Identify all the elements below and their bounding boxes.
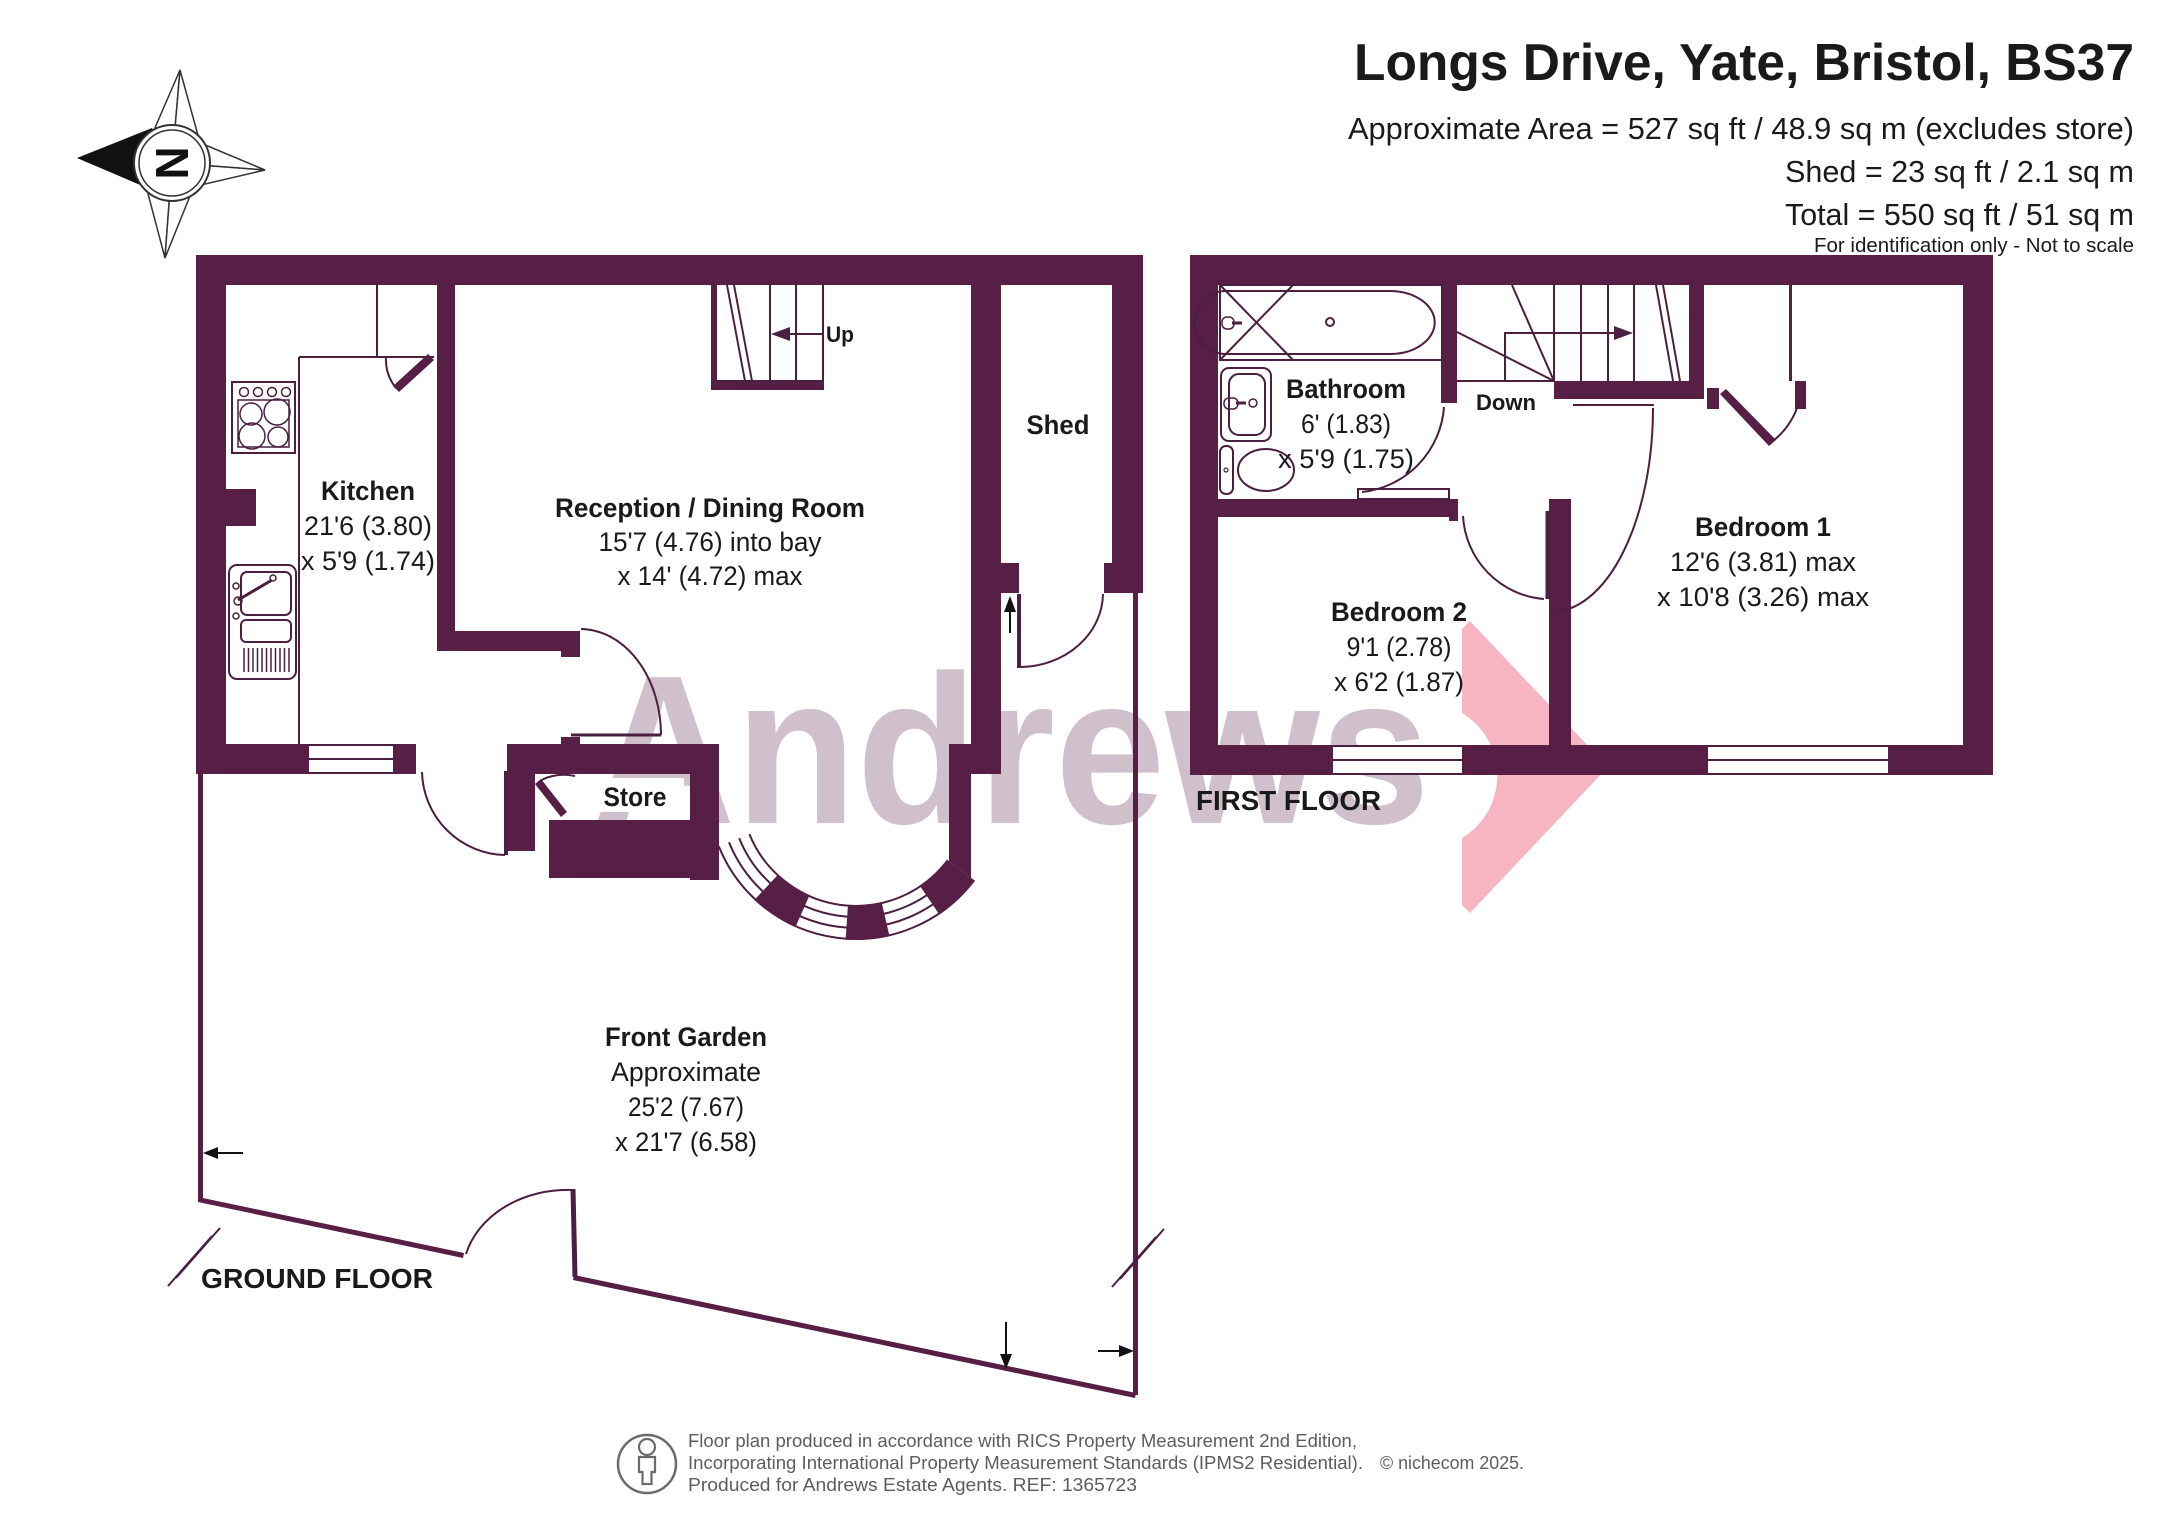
svg-text:Total = 550 sq ft / 51 sq m: Total = 550 sq ft / 51 sq m	[1785, 198, 2134, 232]
svg-text:x 6'2 (1.87): x 6'2 (1.87)	[1334, 667, 1464, 697]
svg-text:FIRST FLOOR: FIRST FLOOR	[1196, 785, 1381, 816]
svg-text:25'2 (7.67): 25'2 (7.67)	[628, 1092, 744, 1122]
svg-text:GROUND FLOOR: GROUND FLOOR	[201, 1263, 433, 1294]
svg-text:21'6 (3.80): 21'6 (3.80)	[304, 511, 432, 541]
svg-text:Front Garden: Front Garden	[605, 1022, 767, 1052]
svg-text:x 5'9 (1.75): x 5'9 (1.75)	[1278, 444, 1414, 474]
svg-text:Floor plan produced in accorda: Floor plan produced in accordance with R…	[688, 1430, 1357, 1451]
svg-text:Reception / Dining Room: Reception / Dining Room	[555, 493, 865, 523]
svg-text:6' (1.83): 6' (1.83)	[1301, 409, 1391, 439]
svg-text:Bathroom: Bathroom	[1286, 374, 1406, 404]
svg-text:Up: Up	[826, 322, 854, 347]
svg-text:© nichecom 2025.: © nichecom 2025.	[1380, 1452, 1524, 1473]
svg-text:12'6 (3.81) max: 12'6 (3.81) max	[1670, 547, 1856, 577]
svg-text:9'1 (2.78): 9'1 (2.78)	[1347, 632, 1452, 662]
svg-text:Produced for Andrews Estate A: Produced for Andrews Estate Agents. REF:…	[688, 1474, 1137, 1495]
svg-text:Incorporating International Pr: Incorporating International Property Mea…	[688, 1452, 1363, 1473]
svg-text:Bedroom 2: Bedroom 2	[1331, 597, 1467, 627]
svg-text:Shed: Shed	[1027, 410, 1090, 440]
svg-text:Shed = 23 sq ft / 2.1 sq m: Shed = 23 sq ft / 2.1 sq m	[1785, 155, 2134, 189]
svg-text:Bedroom 1: Bedroom 1	[1695, 512, 1831, 542]
svg-text:15'7 (4.76) into bay: 15'7 (4.76) into bay	[599, 527, 822, 557]
svg-text:Down: Down	[1476, 390, 1536, 415]
svg-text:Longs Drive, Yate, Bristol, BS: Longs Drive, Yate, Bristol, BS37	[1354, 33, 2134, 91]
svg-text:For identification only - Not: For identification only - Not to scale	[1814, 234, 2134, 257]
svg-text:N: N	[146, 146, 198, 179]
svg-text:x 21'7 (6.58): x 21'7 (6.58)	[615, 1127, 757, 1157]
svg-text:x 5'9 (1.74): x 5'9 (1.74)	[301, 546, 435, 576]
svg-text:Kitchen: Kitchen	[321, 476, 415, 506]
svg-text:Approximate Area = 527 sq ft /: Approximate Area = 527 sq ft / 48.9 sq m…	[1348, 111, 2134, 146]
svg-text:Approximate: Approximate	[611, 1057, 761, 1087]
svg-text:Store: Store	[604, 782, 667, 812]
svg-text:x 14' (4.72) max: x 14' (4.72) max	[618, 561, 803, 591]
svg-text:x 10'8 (3.26) max: x 10'8 (3.26) max	[1657, 582, 1870, 612]
